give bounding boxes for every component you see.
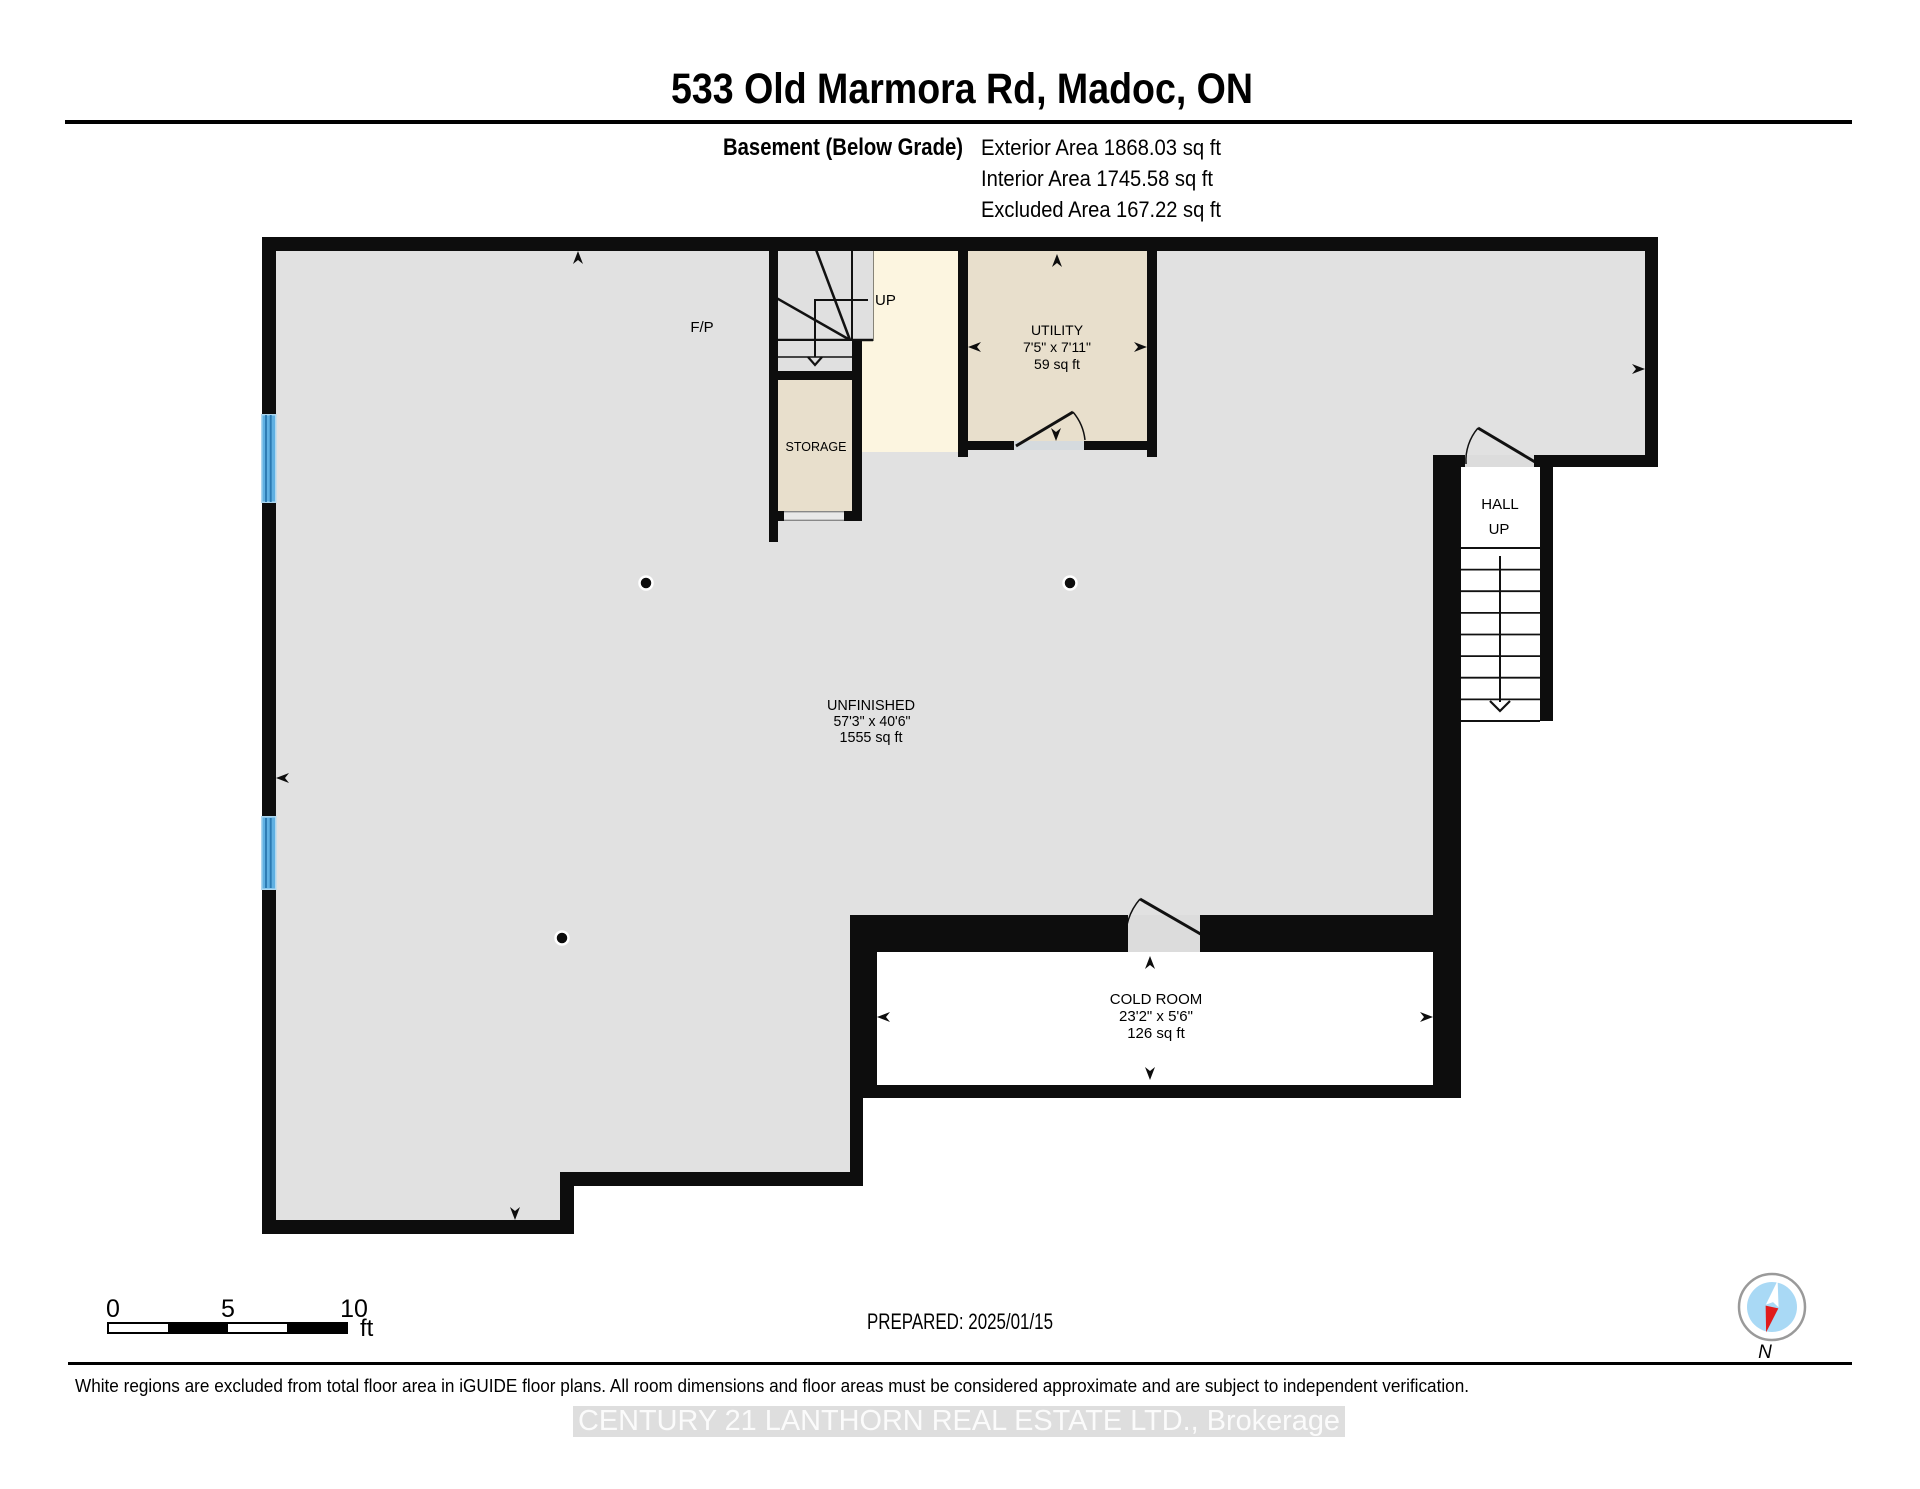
svg-text:COLD ROOM: COLD ROOM — [1110, 991, 1203, 1008]
svg-text:0: 0 — [106, 1295, 120, 1323]
svg-text:ft: ft — [360, 1315, 374, 1342]
svg-text:F/P: F/P — [690, 319, 713, 336]
svg-text:CENTURY 21 LANTHORN REAL ESTAT: CENTURY 21 LANTHORN REAL ESTATE LTD., Br… — [578, 1405, 1340, 1437]
svg-text:PREPARED: 2025/01/15: PREPARED: 2025/01/15 — [867, 1309, 1053, 1334]
svg-text:Exterior Area 1868.03 sq ft: Exterior Area 1868.03 sq ft — [981, 135, 1221, 160]
svg-text:UNFINISHED: UNFINISHED — [827, 697, 915, 714]
svg-text:59 sq ft: 59 sq ft — [1034, 356, 1080, 372]
svg-text:Excluded Area 167.22 sq ft: Excluded Area 167.22 sq ft — [981, 197, 1221, 222]
svg-text:UP: UP — [1489, 521, 1510, 538]
svg-text:UP: UP — [875, 292, 896, 309]
svg-text:7'5" x 7'11": 7'5" x 7'11" — [1023, 339, 1091, 355]
svg-text:Basement (Below Grade): Basement (Below Grade) — [723, 134, 963, 161]
svg-text:N: N — [1758, 1342, 1772, 1363]
svg-text:UTILITY: UTILITY — [1031, 322, 1084, 338]
svg-text:126 sq ft: 126 sq ft — [1127, 1025, 1185, 1042]
svg-text:White regions are excluded fro: White regions are excluded from total fl… — [75, 1375, 1469, 1396]
svg-text:HALL: HALL — [1481, 496, 1519, 513]
svg-text:STORAGE: STORAGE — [786, 440, 847, 454]
svg-text:5: 5 — [221, 1295, 235, 1323]
svg-text:Interior Area 1745.58 sq ft: Interior Area 1745.58 sq ft — [981, 166, 1213, 191]
svg-text:1555 sq ft: 1555 sq ft — [840, 729, 904, 746]
svg-text:57'3" x 40'6": 57'3" x 40'6" — [834, 713, 911, 730]
svg-text:23'2" x 5'6": 23'2" x 5'6" — [1119, 1008, 1193, 1025]
svg-text:533 Old Marmora Rd, Madoc, ON: 533 Old Marmora Rd, Madoc, ON — [671, 65, 1253, 113]
